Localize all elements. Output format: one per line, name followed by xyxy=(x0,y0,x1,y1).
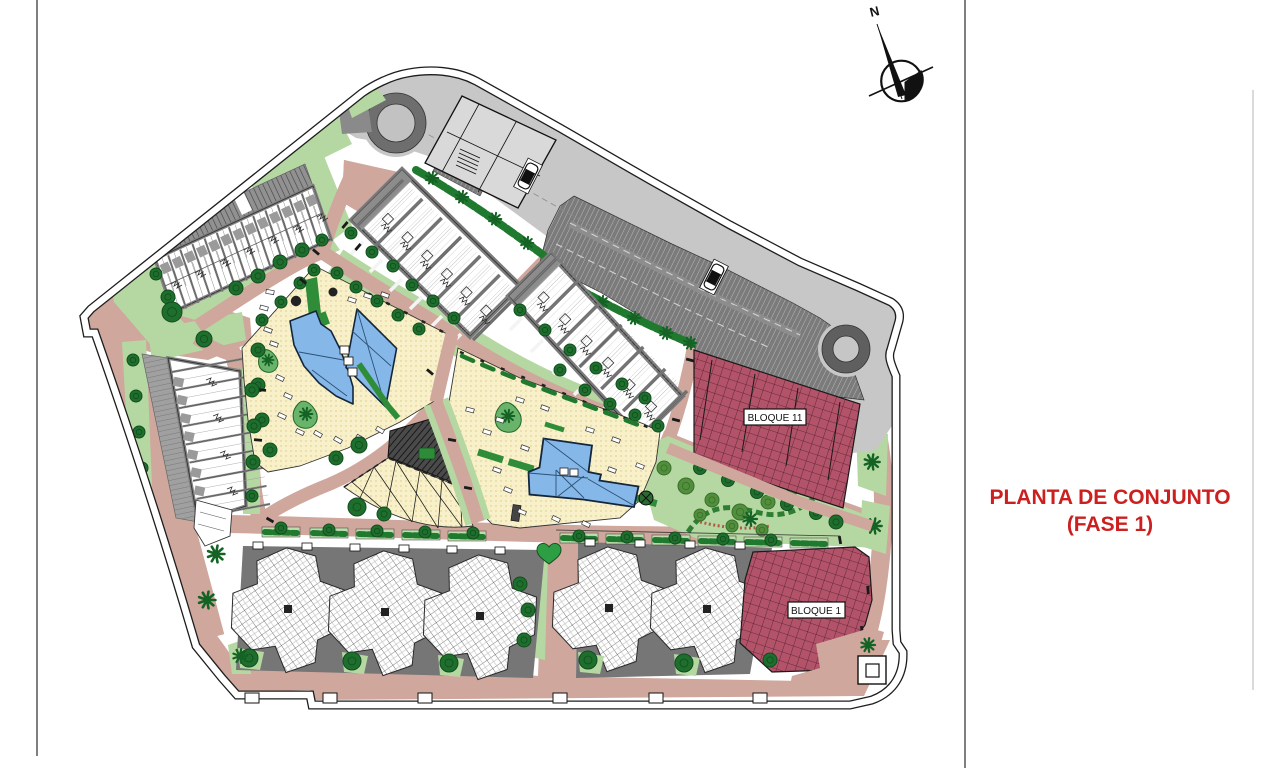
svg-text:PLANTA DE CONJUNTO: PLANTA DE CONJUNTO xyxy=(989,486,1230,509)
svg-text:(FASE 1): (FASE 1) xyxy=(1067,513,1153,536)
svg-text:BLOQUE 1: BLOQUE 1 xyxy=(791,606,841,617)
svg-text:BLOQUE 11: BLOQUE 11 xyxy=(748,413,803,424)
